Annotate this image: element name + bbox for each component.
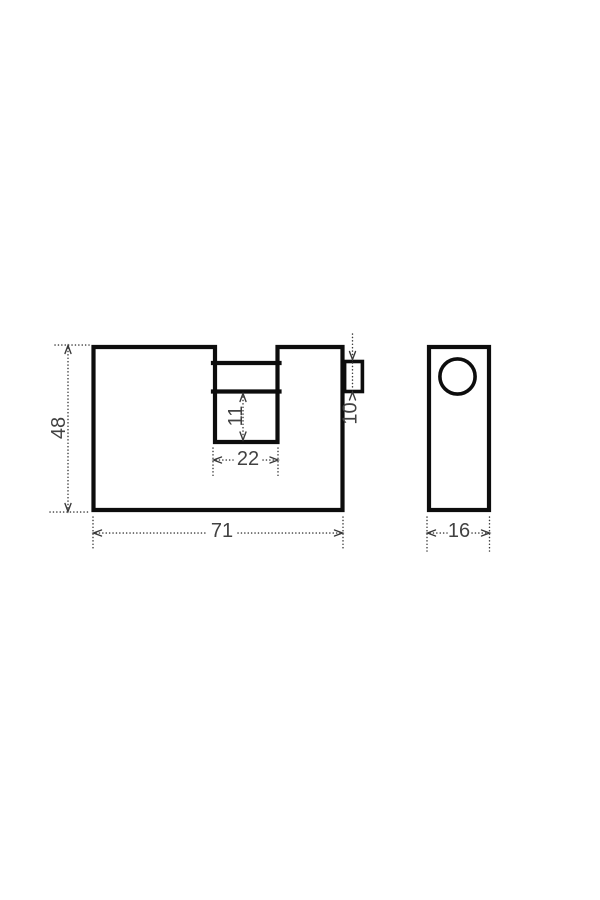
- arrow-down-icon: [240, 432, 246, 440]
- dim-71-label: 71: [211, 520, 233, 542]
- padlock-body-outline: [94, 347, 343, 510]
- arrow-left-icon: [94, 530, 102, 536]
- dimension-height-48: 48: [48, 345, 89, 512]
- arrow-down-icon: [350, 352, 356, 360]
- dim-22-label: 22: [237, 448, 259, 470]
- arrow-up-icon: [65, 346, 71, 354]
- dim-10-label: 10: [340, 402, 362, 424]
- side-view: [429, 347, 489, 510]
- technical-drawing: 48 71 22 11: [0, 0, 600, 900]
- page-canvas: 48 71 22 11: [0, 0, 600, 900]
- dim-48-label: 48: [48, 417, 70, 439]
- shackle-end: [345, 362, 363, 392]
- dimension-side-width-16: 16: [427, 517, 490, 551]
- dim-11-label: 11: [225, 406, 247, 427]
- dimension-notch-depth-11: 11: [225, 394, 247, 441]
- front-view: [94, 347, 363, 510]
- side-body-outline: [429, 347, 489, 510]
- arrow-left-icon: [428, 530, 436, 536]
- keyhole-circle: [440, 359, 475, 394]
- dimension-width-71: 71: [93, 517, 343, 549]
- dim-16-label: 16: [448, 520, 470, 542]
- arrow-left-icon: [214, 457, 222, 463]
- arrow-right-icon: [335, 530, 343, 536]
- dimension-notch-width-22: 22: [213, 448, 278, 476]
